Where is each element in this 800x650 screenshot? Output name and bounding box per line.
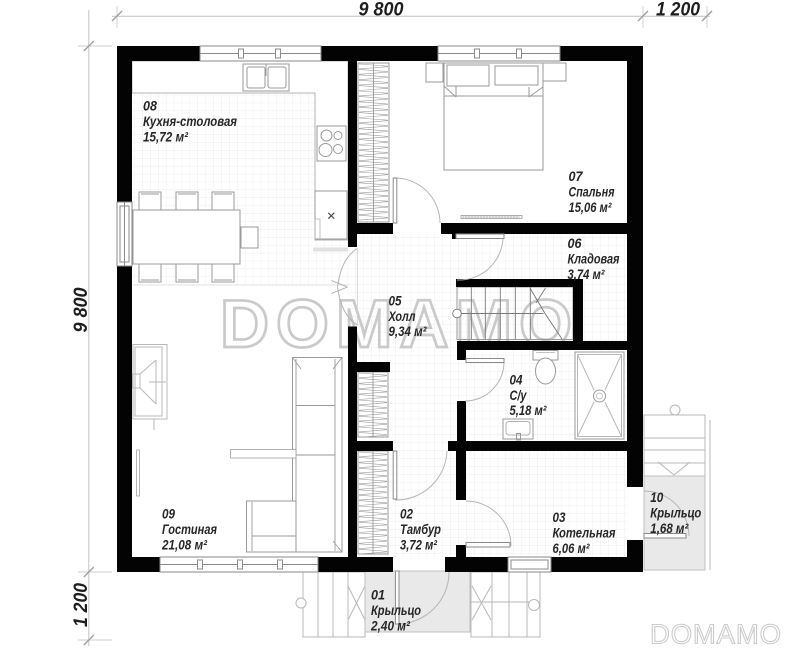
svg-text:Гостиная: Гостиная (162, 522, 217, 537)
svg-text:15,06 м²: 15,06 м² (569, 200, 612, 215)
svg-text:3,74 м²: 3,74 м² (568, 267, 605, 282)
svg-text:Кухня-столовая: Кухня-столовая (143, 114, 237, 129)
svg-text:DOMAMO: DOMAMO (650, 619, 781, 650)
svg-text:21,08 м²: 21,08 м² (161, 538, 207, 553)
svg-text:Крыльцо: Крыльцо (650, 505, 701, 520)
svg-text:03: 03 (553, 510, 566, 525)
svg-text:Котельная: Котельная (553, 526, 616, 541)
svg-text:07: 07 (569, 169, 584, 184)
svg-text:1 200: 1 200 (656, 0, 700, 21)
svg-text:06: 06 (568, 236, 582, 251)
svg-text:9 800: 9 800 (71, 287, 92, 332)
svg-text:1 200: 1 200 (71, 583, 92, 627)
svg-text:Крыльцо: Крыльцо (371, 603, 421, 618)
svg-text:04: 04 (510, 372, 523, 387)
svg-text:С/у: С/у (510, 388, 528, 403)
svg-text:1,68 м²: 1,68 м² (650, 521, 688, 536)
svg-text:2,40 м²: 2,40 м² (370, 619, 410, 634)
svg-text:15,72 м²: 15,72 м² (143, 130, 188, 145)
svg-text:3,72 м²: 3,72 м² (400, 538, 437, 553)
svg-text:9,34 м²: 9,34 м² (389, 324, 427, 339)
svg-text:Кладовая: Кладовая (568, 252, 620, 267)
svg-text:Спальня: Спальня (569, 184, 615, 199)
svg-text:10: 10 (650, 490, 663, 505)
svg-text:5,18 м²: 5,18 м² (510, 403, 547, 418)
svg-text:Холл: Холл (388, 309, 416, 324)
svg-text:Тамбур: Тамбур (400, 522, 441, 537)
svg-text:02: 02 (400, 507, 413, 522)
svg-text:6,06 м²: 6,06 м² (553, 541, 590, 556)
svg-text:08: 08 (143, 99, 157, 114)
svg-text:09: 09 (162, 507, 175, 522)
svg-text:01: 01 (371, 588, 385, 603)
svg-text:05: 05 (389, 293, 402, 308)
svg-text:9 800: 9 800 (359, 0, 404, 21)
